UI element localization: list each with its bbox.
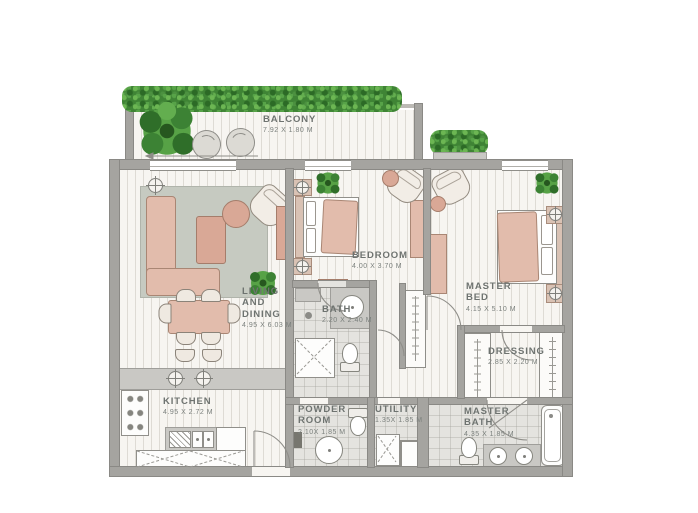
room-dims: 4.00 X 3.70 M xyxy=(352,263,408,270)
utility-door-panel xyxy=(400,440,419,470)
dishwasher xyxy=(216,427,246,452)
window xyxy=(150,160,236,171)
room-label-master-bath: MASTER BATH 4.35 X 1.85 M xyxy=(464,406,514,438)
entrance-gap xyxy=(252,467,290,476)
room-label-kitchen: KITCHEN 4.95 X 2.72 M xyxy=(163,396,213,416)
room-name: MASTER BED xyxy=(466,281,516,304)
room-dims: 2.20 X 2.40 M xyxy=(322,317,372,324)
room-name: UTILITY xyxy=(375,404,423,415)
room-dims: 4.95 X 6.03 M xyxy=(242,322,292,329)
stove-icon xyxy=(196,371,211,386)
dressing-door-gap xyxy=(500,326,532,332)
room-dims: 4.35 X 1.85 M xyxy=(464,431,514,438)
right-wall xyxy=(563,160,572,476)
appliance-column xyxy=(121,390,149,436)
dining-chair xyxy=(201,332,221,345)
floor-drain xyxy=(305,312,312,319)
bath-right-wall xyxy=(370,281,376,404)
floor-plan: BALCONY 7.92 X 1.80 M LIVING AND DINING … xyxy=(0,0,698,513)
tub-drain xyxy=(549,414,553,418)
balcony-door xyxy=(305,160,351,171)
room-dims: 4.95 X 2.72 M xyxy=(163,409,213,416)
room-name: BEDROOM xyxy=(352,250,408,261)
ottoman xyxy=(222,200,250,228)
room-dims: 2.85 X 2.20 M xyxy=(488,359,545,366)
side-table xyxy=(430,196,446,212)
room-name: BATH xyxy=(322,304,372,315)
ceiling-lamp-icon xyxy=(296,181,309,194)
bedroom-master-wall xyxy=(424,169,430,294)
room-name: POWDER ROOM xyxy=(298,404,346,427)
dressing-left-wall xyxy=(458,326,464,398)
room-label-balcony: BALCONY 7.92 X 1.80 M xyxy=(263,114,316,134)
bar-stool xyxy=(202,349,222,362)
duvet xyxy=(321,199,359,255)
toilet-icon xyxy=(350,416,366,436)
room-dims: 2.10X 1.85 M xyxy=(298,429,346,436)
wardrobe-icon xyxy=(430,234,447,294)
ceiling-lamp-icon xyxy=(148,178,163,193)
pillow xyxy=(306,201,316,226)
hob-icon xyxy=(192,431,203,448)
room-name: LIVING AND DINING xyxy=(242,286,292,320)
dining-chair xyxy=(201,289,221,302)
master-bath-door-gap xyxy=(487,398,527,404)
wardrobe-icon xyxy=(405,290,426,368)
room-name: MASTER BATH xyxy=(464,406,514,429)
room-name: BALCONY xyxy=(263,114,316,125)
room-label-living-dining: LIVING AND DINING 4.95 X 6.03 M xyxy=(242,286,292,329)
balcony-left-wall xyxy=(126,104,133,162)
window xyxy=(502,160,548,171)
balcony-right-wall xyxy=(415,104,422,162)
dining-chair xyxy=(176,332,196,345)
shower-icon xyxy=(295,338,335,378)
toilet-icon xyxy=(342,343,358,364)
room-label-master-bed: MASTER BED 4.15 X 5.10 M xyxy=(466,281,516,313)
plant-icon xyxy=(312,168,344,198)
pillow xyxy=(541,247,553,275)
room-name: KITCHEN xyxy=(163,396,213,407)
room-label-dressing: DRESSING 2.85 X 2.20 M xyxy=(488,346,545,366)
room-label-utility: UTILITY 1.35X 1.85 M xyxy=(375,404,423,424)
room-dims: 7.92 X 1.80 M xyxy=(263,127,316,134)
room-dims: 4.15 X 5.10 M xyxy=(466,306,516,313)
room-label-powder-room: POWDER ROOM 2.10X 1.85 M xyxy=(298,404,346,436)
hob-icon xyxy=(203,431,214,448)
wardrobe-icon xyxy=(464,333,491,403)
coffee-table xyxy=(196,216,226,264)
duvet xyxy=(497,211,539,282)
ceiling-lamp-icon xyxy=(549,208,562,221)
bar-stool xyxy=(175,349,195,362)
corridor-wall xyxy=(400,284,405,368)
room-label-bath: BATH 2.20 X 2.40 M xyxy=(322,304,372,324)
toilet-icon xyxy=(461,437,477,458)
wardrobe-icon xyxy=(539,331,565,403)
room-name: DRESSING xyxy=(488,346,545,357)
room-dims: 1.35X 1.85 M xyxy=(375,417,423,424)
bath-shelf xyxy=(295,288,321,302)
left-wall xyxy=(110,160,119,476)
sink-icon xyxy=(489,447,507,465)
dining-chair xyxy=(228,304,241,324)
ceiling-lamp-icon xyxy=(296,260,309,273)
sink-icon xyxy=(315,436,343,464)
dining-chair xyxy=(159,304,172,324)
sink-icon xyxy=(515,447,533,465)
ottoman xyxy=(382,170,399,187)
stove-icon xyxy=(168,371,183,386)
plant-icon xyxy=(136,100,198,162)
plant-icon xyxy=(531,168,563,198)
pillow xyxy=(306,228,316,253)
bath-door-gap xyxy=(318,281,346,287)
dining-table-icon xyxy=(168,300,230,334)
washer-icon xyxy=(376,434,400,466)
ceiling-lamp-icon xyxy=(549,287,562,300)
powder-utility-wall xyxy=(368,398,374,467)
bottom-wall xyxy=(110,467,572,476)
room-label-bedroom: BEDROOM 4.00 X 3.70 M xyxy=(352,250,408,270)
dining-chair xyxy=(176,289,196,302)
kitchen-sink-icon xyxy=(169,431,191,448)
